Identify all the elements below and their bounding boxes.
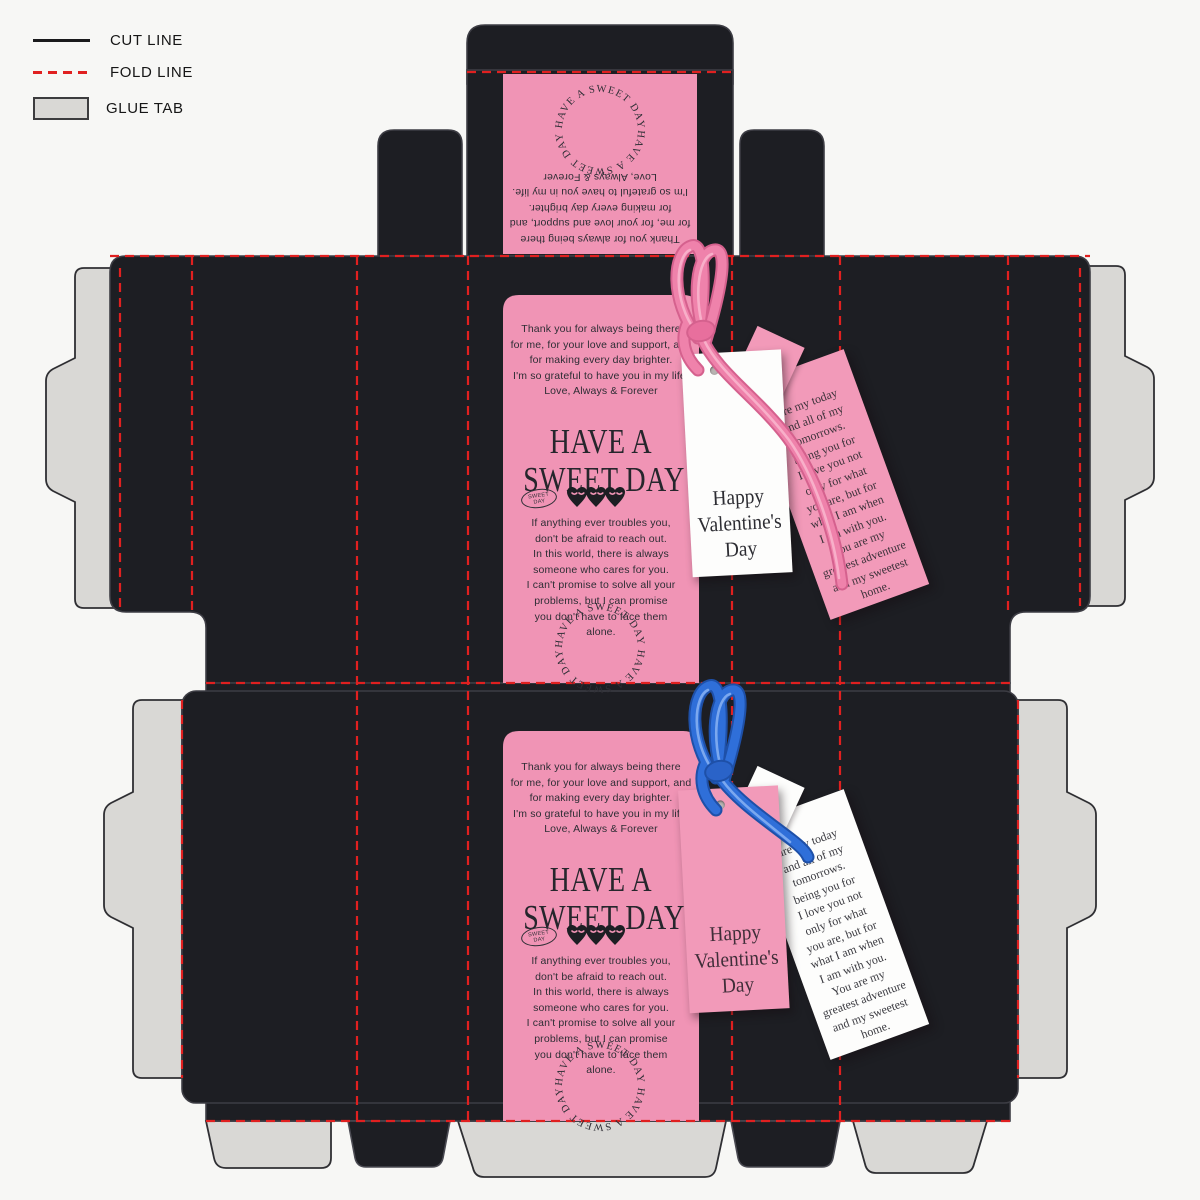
svg-text:HAVE A SWEET DAY HAVE A SWEET: HAVE A SWEET DAY HAVE A SWEET DAY bbox=[554, 1040, 646, 1132]
lid-circular-text: HAVE A SWEET DAY HAVE A SWEET DAY bbox=[550, 80, 650, 180]
tag-hole bbox=[716, 800, 725, 809]
legend-item-fold-line: FOLD LINE bbox=[33, 56, 293, 88]
tag-hole bbox=[710, 366, 719, 375]
lid-side-flap-left bbox=[378, 130, 462, 256]
svg-text:HAVE A SWEET DAY HAVE A SWEET: HAVE A SWEET DAY HAVE A SWEET DAY bbox=[554, 602, 646, 694]
fold-line-label: FOLD LINE bbox=[110, 64, 193, 81]
hearts-icon bbox=[565, 483, 627, 511]
black-flap-bottom-1 bbox=[348, 1121, 450, 1167]
thanks-message: Thank you for always being there for me,… bbox=[503, 322, 699, 400]
glue-tab-top-right bbox=[1080, 266, 1154, 606]
circular-text: HAVE A SWEET DAY HAVE A SWEET DAY bbox=[550, 1036, 650, 1136]
glue-tab-bottom-left bbox=[104, 700, 182, 1078]
black-flap-bottom-2 bbox=[731, 1121, 840, 1167]
glue-tab-label: GLUE TAB bbox=[106, 100, 184, 117]
fold-line-swatch-icon bbox=[33, 71, 90, 74]
valentine-tag-pink: Happy Valentine's Day bbox=[678, 785, 790, 1013]
hearts-icon bbox=[565, 921, 627, 949]
lid-side-flap-right bbox=[740, 130, 824, 256]
glue-tab-bottom-right bbox=[1018, 700, 1096, 1078]
legend: CUT LINE FOLD LINE GLUE TAB bbox=[33, 24, 293, 128]
svg-text:HAVE A SWEET DAY HAVE A SWEET: HAVE A SWEET DAY HAVE A SWEET DAY bbox=[554, 84, 646, 176]
cut-line-swatch-icon bbox=[33, 39, 90, 42]
glue-flap-bottom-3 bbox=[853, 1121, 987, 1173]
legend-item-cut-line: CUT LINE bbox=[33, 24, 293, 56]
legend-item-glue-tab: GLUE TAB bbox=[33, 88, 293, 128]
valentine-tag-label: Happy Valentine's Day bbox=[688, 481, 792, 564]
thanks-message: Thank you for always being there for me,… bbox=[503, 760, 699, 838]
glue-tab-swatch-icon bbox=[33, 97, 89, 120]
dieline-canvas: CUT LINE FOLD LINE GLUE TAB bbox=[0, 0, 1200, 1200]
glue-tab-top-left bbox=[46, 268, 120, 608]
circular-text: HAVE A SWEET DAY HAVE A SWEET DAY bbox=[550, 598, 650, 698]
lid-print-content: Thank you for always being there for me,… bbox=[503, 74, 697, 254]
valentine-tag-label: Happy Valentine's Day bbox=[685, 917, 789, 1000]
glue-flap-bottom-1 bbox=[206, 1121, 331, 1168]
cut-line-label: CUT LINE bbox=[110, 32, 183, 49]
valentine-tag-white: Happy Valentine's Day bbox=[681, 349, 793, 577]
